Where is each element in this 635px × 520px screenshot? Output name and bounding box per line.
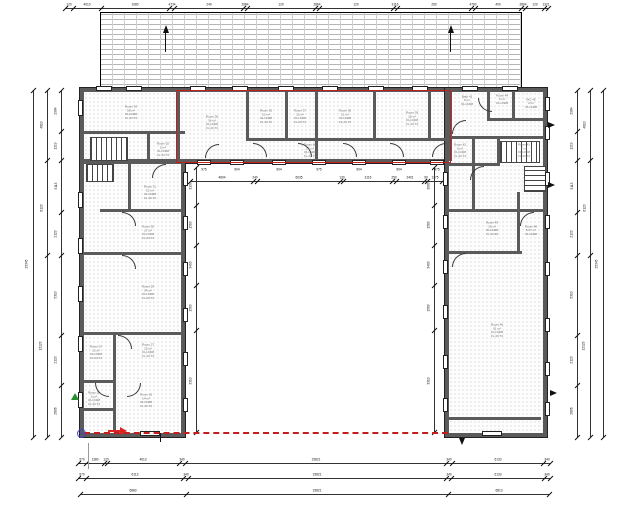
dim-label: 2123	[54, 356, 58, 363]
dim-line	[33, 90, 34, 437]
dim-line	[590, 90, 591, 437]
dim-label: 3310	[189, 377, 193, 384]
room-label: Room 3017 m²OH 2408FL 23.73	[142, 225, 154, 240]
dim-label: 15821	[313, 489, 322, 493]
dim-label: 3403	[427, 261, 431, 268]
dim-label: 6035	[295, 176, 302, 180]
window	[502, 86, 518, 91]
dim-label: 1563	[427, 221, 431, 228]
dim-tick	[546, 492, 552, 498]
interior-wall	[80, 131, 185, 134]
dim-label: 3310	[427, 377, 431, 384]
dim-label: 6113	[131, 473, 138, 477]
interior-wall	[100, 209, 185, 212]
window	[545, 362, 550, 376]
dim-label: 6123	[40, 204, 44, 211]
dim-label: 2401	[406, 176, 413, 180]
dim-label: 1563	[189, 304, 193, 311]
room-label: Room 0514 m²OH 2408FL 23.73	[140, 393, 152, 408]
room-label-line: FL 23.73	[125, 116, 137, 120]
dim-line	[47, 90, 48, 437]
section-arrow	[548, 182, 555, 188]
interior-wall	[487, 118, 544, 121]
room-label: Bath 438 m²OH 2408	[461, 94, 473, 105]
dim-label: 1219	[570, 142, 574, 149]
dim-tick	[574, 435, 580, 441]
window	[545, 215, 550, 229]
dim-label: 12123	[38, 342, 42, 351]
section-arrow	[550, 390, 557, 396]
interior-wall	[128, 164, 131, 209]
room-label-line: OH 2408	[525, 232, 537, 236]
dim-label: 2984	[241, 3, 248, 7]
window	[443, 305, 448, 319]
courtyard-dashed-boundary	[84, 432, 448, 434]
window	[545, 262, 550, 276]
north-arrow-head	[163, 25, 169, 33]
dim-label: 3083	[427, 182, 431, 189]
window	[443, 260, 448, 274]
room-label-line: FL 23.73	[140, 404, 152, 408]
window	[183, 398, 188, 412]
window	[78, 286, 83, 302]
dim-label: 2123	[570, 356, 574, 363]
dim-label: 2804	[519, 3, 526, 7]
dim-label: 3403	[189, 261, 193, 268]
window	[78, 100, 83, 116]
dim-label: 6133	[494, 458, 501, 462]
window	[183, 352, 188, 366]
room-label: Room 485.07 m²OH 2408	[525, 224, 537, 235]
interior-wall	[445, 136, 544, 139]
dim-label: 570	[79, 473, 84, 477]
dim-label: 400	[495, 3, 500, 7]
room-label-line: FL 23.68	[486, 232, 498, 236]
room-label: Room 3121 m²OH 2408FL 23.73	[144, 185, 156, 200]
interior-wall	[147, 131, 150, 163]
dim-label: 3116	[392, 3, 399, 7]
dim-label: 12123	[581, 342, 585, 351]
room-label: Room 3458 m²OH 2408FL 23.73	[125, 105, 137, 120]
staircase	[524, 166, 546, 192]
window-width-label: 904	[234, 168, 239, 172]
window	[183, 308, 188, 322]
dim-label: 4790	[469, 3, 476, 7]
room-label-line: FL 23.73	[454, 154, 466, 158]
room-label-line: FL 23.73	[88, 402, 100, 406]
dim-tick	[600, 435, 606, 441]
room-label: Room 025 m²OH 2408FL 23.73	[157, 142, 169, 157]
room-label-line: OH 2408	[496, 101, 508, 105]
dim-label: 25345	[24, 259, 28, 268]
window	[443, 355, 448, 369]
dim-line	[190, 181, 442, 182]
dim-label: 2806	[54, 407, 58, 414]
dim-label: 1321	[542, 3, 549, 7]
dim-line	[434, 167, 435, 432]
dim-label: 340	[544, 473, 549, 477]
room-label-line: FL 23.73	[90, 356, 102, 360]
window	[183, 172, 188, 186]
room-label-line: FL 23.73	[518, 154, 530, 158]
section-arrow-down	[459, 438, 465, 445]
dim-tick	[547, 476, 553, 482]
window	[78, 192, 83, 208]
dim-label: 6123	[583, 204, 587, 211]
window	[545, 402, 550, 416]
dim-label: 340	[183, 473, 188, 477]
dim-label: 4010	[83, 3, 90, 7]
room-label: Room 0713 m²OH 2408FL 23.73	[90, 345, 102, 360]
north-arrow	[450, 32, 451, 52]
window	[462, 86, 478, 91]
dim-label: 1563	[427, 304, 431, 311]
dim-label: 120	[353, 3, 358, 7]
dim-label: 90	[424, 176, 428, 180]
room-label: Room 429 m²OH 2408FL 23.73	[454, 143, 466, 158]
dim-label: 5310	[570, 291, 574, 298]
room-label: Room 065 m²OH 2408FL 23.73	[88, 391, 100, 406]
room-label: Room 4930 m²OH 2408FL 23.68	[486, 221, 498, 236]
window	[482, 431, 502, 436]
dim-label: 2123	[54, 230, 58, 237]
highlighted-room-group[interactable]	[176, 90, 451, 163]
window-width-label: 904	[356, 168, 361, 172]
dim-label: 6133	[494, 473, 501, 477]
window	[443, 398, 448, 412]
dim-label: 4734	[168, 3, 175, 7]
window-width-label: 904	[276, 168, 281, 172]
dim-tick	[30, 435, 36, 441]
window	[545, 126, 550, 140]
room-label-line: OH 2408	[525, 105, 537, 109]
existing-building-hatch	[100, 12, 522, 90]
room-label-line: FL 23.73	[157, 153, 169, 157]
dim-label: 2864	[313, 3, 320, 7]
dim-label: 1219	[54, 142, 58, 149]
dim-label: 240	[206, 3, 211, 7]
dim-label: 250	[391, 176, 396, 180]
section-arrow	[548, 122, 555, 128]
dim-label: 4810	[40, 121, 44, 128]
dim-tick	[587, 435, 593, 441]
staircase	[90, 137, 128, 161]
dim-tick	[547, 461, 553, 467]
dim-line	[78, 478, 550, 479]
room-label: Room 2934 m²OH 2408FL 23.73	[142, 285, 154, 300]
dim-label: 120	[66, 3, 71, 7]
entrance-arrow-head	[120, 427, 127, 435]
dim-label: 240	[252, 176, 257, 180]
window-width-label: 975	[201, 168, 206, 172]
dim-label: 130	[339, 176, 344, 180]
dim-label: 5310	[54, 291, 58, 298]
dim-label: 4613	[139, 458, 146, 462]
dim-label: 120	[278, 3, 283, 7]
survey-point-marker	[77, 429, 86, 438]
interior-wall	[113, 335, 116, 432]
window	[443, 172, 448, 186]
dim-label: 5113	[54, 183, 58, 190]
dim-tick	[58, 435, 64, 441]
dim-label: 340	[179, 458, 184, 462]
interior-wall	[448, 417, 541, 420]
window	[545, 97, 550, 111]
dim-label: 1563	[189, 221, 193, 228]
dim-line	[196, 167, 197, 432]
window-width-label: 975	[316, 168, 321, 172]
dim-label: 4810	[583, 121, 587, 128]
interior-wall	[80, 332, 185, 335]
interior-wall	[80, 252, 185, 255]
dim-label: 340	[544, 458, 549, 462]
room-label-line: FL 23.73	[491, 334, 503, 338]
room-label: Room 417 m²OH 2408FL 23.73	[518, 143, 530, 158]
window	[78, 238, 83, 254]
room-label-line: FL 23.73	[142, 354, 154, 358]
staircase	[86, 164, 114, 182]
room-label: Room 4691 m²OH 2408FL 23.73	[491, 323, 503, 338]
dim-label: 340	[446, 458, 451, 462]
window	[183, 262, 188, 276]
window	[126, 86, 142, 91]
dim-line	[603, 90, 604, 437]
window	[183, 216, 188, 230]
dim-label: 25345	[594, 259, 598, 268]
benchmark-triangle-marker	[71, 393, 79, 400]
dim-label: 120	[532, 3, 537, 7]
dim-label: 2984	[54, 107, 58, 114]
room-label: WC 453 m²OH 2408	[525, 97, 537, 108]
room-label-line: FL 23.73	[144, 196, 156, 200]
dim-label: 3116	[364, 176, 371, 180]
dim-label: 15821	[311, 458, 320, 462]
north-arrow-head	[448, 25, 454, 33]
entrance-arrow-marker	[108, 430, 120, 432]
origin-guide-line	[88, 443, 89, 469]
dim-label: 3133	[189, 182, 193, 189]
floor-plan-canvas: Room 3458 m²OH 2408FL 23.73Room 025 m²OH…	[0, 0, 635, 520]
datum-tick	[160, 433, 161, 442]
dim-label: 2984	[570, 107, 574, 114]
room-label: Room 446 m²OH 2408	[496, 93, 508, 104]
window	[78, 336, 83, 352]
room-label: Room 2715 m²OH 2408FL 23.73	[142, 343, 154, 358]
window-width-label: 904	[396, 168, 401, 172]
dim-label: 5113	[570, 183, 574, 190]
room-label-line: FL 23.73	[142, 296, 154, 300]
window	[545, 318, 550, 332]
dim-label: 120	[103, 458, 108, 462]
dim-label: 2123	[570, 230, 574, 237]
interior-wall	[512, 91, 515, 121]
window-width-label: 975	[434, 168, 439, 172]
dim-label: 570	[79, 458, 84, 462]
dim-label: 6813	[495, 489, 502, 493]
window	[443, 215, 448, 229]
window	[96, 86, 112, 91]
dim-line	[78, 463, 550, 464]
room-label-line: FL 23.73	[142, 236, 154, 240]
interior-wall	[80, 408, 116, 411]
room-label-line: OH 2408	[461, 102, 473, 106]
dim-line	[80, 494, 549, 495]
dim-label: 250	[431, 3, 436, 7]
dim-label: 1380	[91, 458, 98, 462]
north-arrow	[165, 32, 166, 52]
dim-label: 15821	[313, 473, 322, 477]
dim-label: 4604	[218, 176, 225, 180]
dim-label: 1080	[131, 3, 138, 7]
dim-label: 340	[446, 473, 451, 477]
dim-label: 2806	[570, 407, 574, 414]
dim-tick	[44, 435, 50, 441]
dim-label: 6883	[129, 489, 136, 493]
